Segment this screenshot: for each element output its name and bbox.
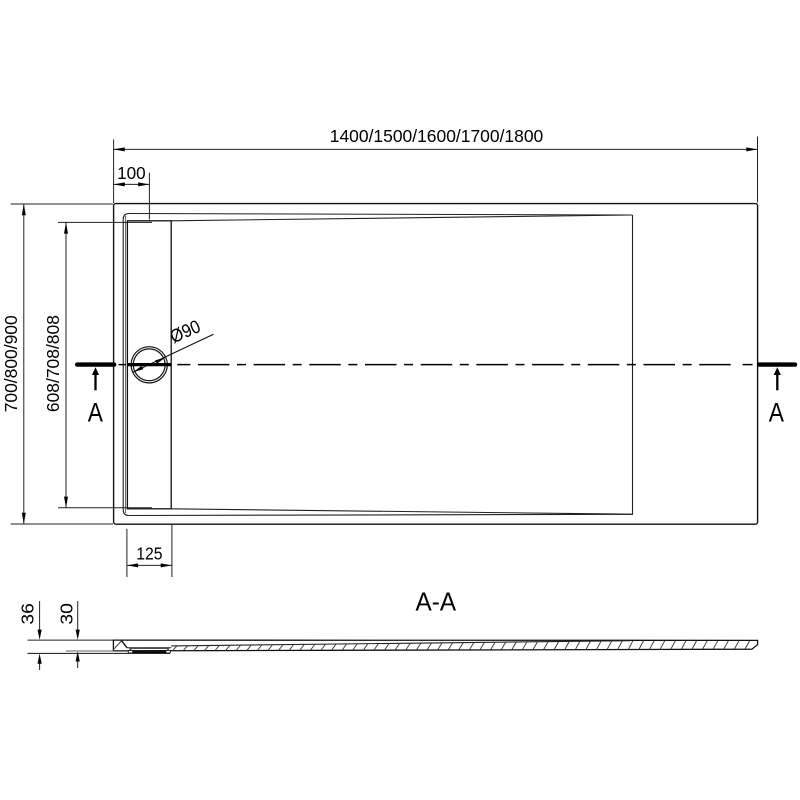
svg-text:A: A: [88, 397, 103, 427]
svg-text:A-A: A-A: [416, 589, 457, 617]
svg-text:1400/1500/1600/1700/1800: 1400/1500/1600/1700/1800: [330, 126, 544, 146]
svg-text:36: 36: [18, 603, 38, 625]
svg-text:125: 125: [136, 544, 162, 564]
svg-text:700/800/900: 700/800/900: [1, 315, 21, 412]
svg-text:100: 100: [117, 163, 146, 183]
svg-text:A: A: [769, 397, 784, 427]
svg-text:30: 30: [57, 603, 77, 625]
svg-text:608/708/808: 608/708/808: [43, 315, 63, 412]
